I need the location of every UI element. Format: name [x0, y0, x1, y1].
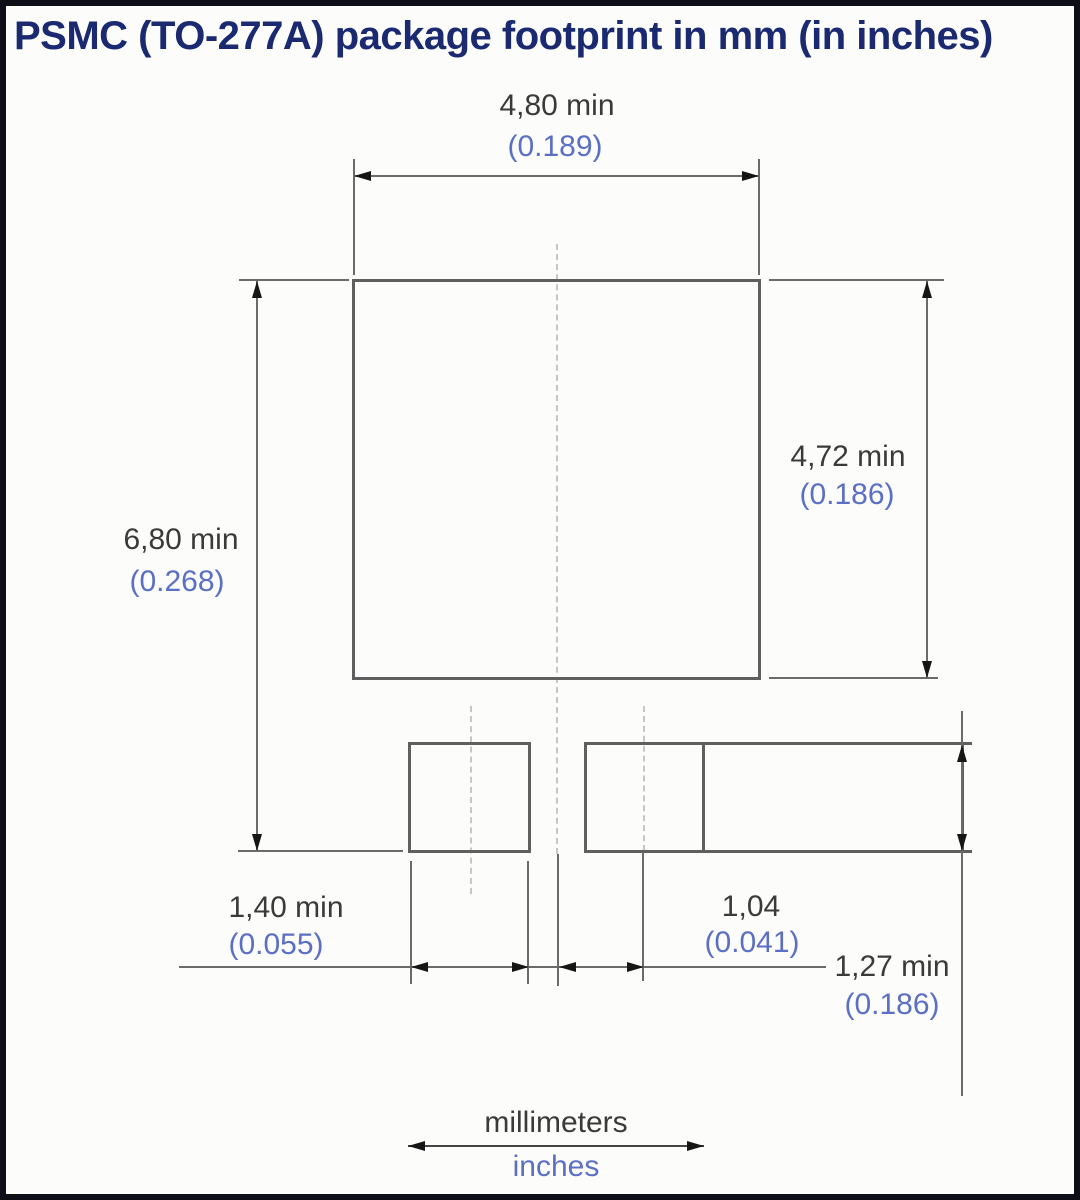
legend-inches-label: inches [513, 1151, 600, 1183]
dimension-line-body-height [926, 281, 928, 678]
arrowhead-down-icon [252, 834, 262, 851]
main-pad-outline [352, 279, 761, 680]
extension-line [769, 279, 944, 281]
arrowhead-up-icon [957, 745, 967, 762]
arrowhead-up-icon [252, 281, 262, 298]
dimension-line-bottom [179, 966, 826, 968]
large-pad-outline [584, 742, 964, 853]
pad-offset-inch-label: (0.041) [704, 927, 799, 959]
dimension-line-body-width [354, 175, 759, 177]
arrowhead-left-icon [559, 962, 576, 972]
legend-arrow-line [408, 1145, 704, 1147]
body-width-mm-label: 4,80 min [499, 90, 614, 122]
arrowhead-up-icon [922, 281, 932, 298]
small-pad-width-inch-label: (0.055) [228, 929, 323, 961]
body-width-inch-label: (0.189) [507, 131, 602, 163]
extension-line [769, 677, 938, 679]
arrowhead-right-icon [627, 962, 644, 972]
body-height-mm-label: 4,72 min [790, 441, 905, 473]
large-pad-divider-line [702, 744, 705, 851]
arrowhead-left-icon [411, 962, 428, 972]
pad-offset-mm-label: 1,04 [722, 891, 780, 923]
arrowhead-right-icon [512, 962, 529, 972]
arrowhead-right-icon [687, 1141, 704, 1151]
footprint-diagram: PSMC (TO-277A) package footprint in mm (… [0, 0, 1080, 1200]
legend-millimeters-label: millimeters [484, 1107, 627, 1139]
arrowhead-down-icon [957, 834, 967, 851]
extension-line [238, 850, 403, 852]
overall-height-mm-label: 6,80 min [123, 524, 238, 556]
arrowhead-right-icon [742, 171, 759, 181]
body-height-inch-label: (0.186) [799, 479, 894, 511]
arrowhead-down-icon [922, 661, 932, 678]
dimension-line-overall-height [256, 281, 258, 851]
dimension-line-pad-height [961, 711, 963, 1096]
small-pad-width-mm-label: 1,40 min [228, 892, 343, 924]
arrowhead-left-icon [408, 1141, 425, 1151]
pad-height-inch-label: (0.186) [844, 989, 939, 1021]
pad-height-mm-label: 1,27 min [834, 951, 949, 983]
overall-height-inch-label: (0.268) [129, 566, 224, 598]
arrowhead-left-icon [354, 171, 371, 181]
small-pad-outline [408, 742, 531, 853]
page-title: PSMC (TO-277A) package footprint in mm (… [14, 14, 993, 59]
